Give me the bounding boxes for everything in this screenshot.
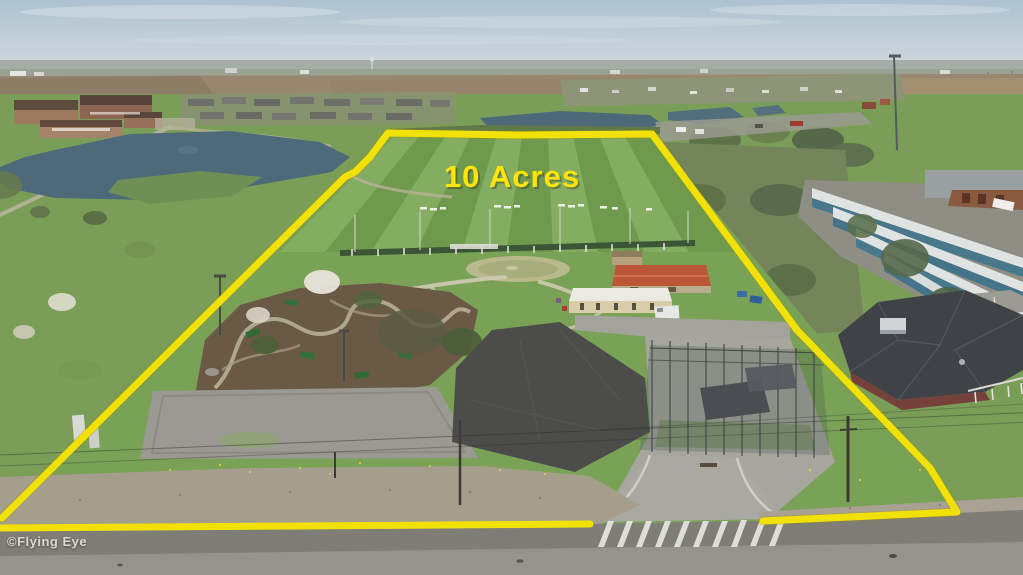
scene-canvas: 10 Acres 10 Acres (0, 0, 1023, 575)
sky (0, 0, 1023, 70)
boundary-bottom-segment (0, 524, 590, 528)
maintenance-shed (612, 251, 642, 265)
aerial-photo: 10 Acres 10 Acres ©Flying Eye (0, 0, 1023, 575)
acreage-label-text: 10 Acres (444, 159, 580, 194)
clubhouse-building (556, 288, 672, 313)
watermark: ©Flying Eye (7, 534, 87, 549)
rv-trailer (655, 305, 680, 320)
subdivision-townhomes (180, 92, 455, 126)
batting-cages (640, 340, 830, 467)
acreage-label: 10 Acres 10 Acres (444, 159, 582, 196)
